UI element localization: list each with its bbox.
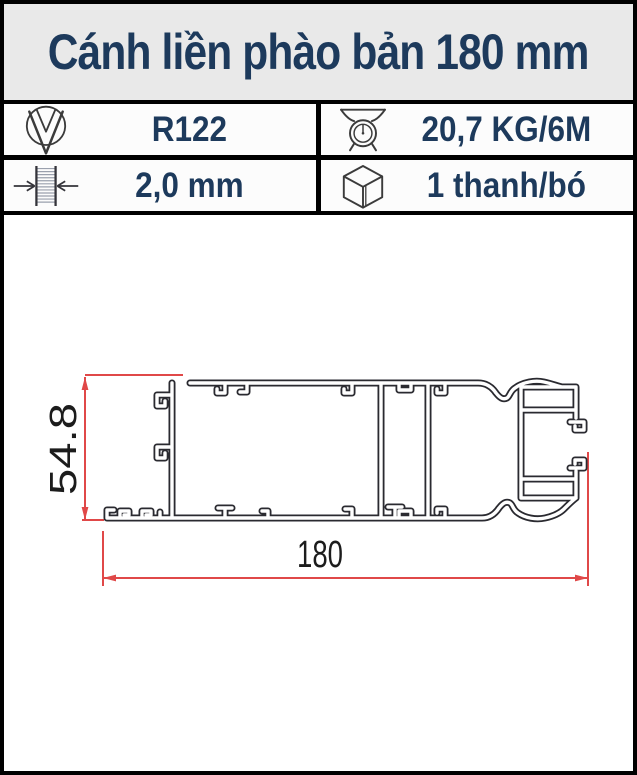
spec-table: R122 20,7 KG/6M [4,104,633,215]
arrow-down-icon [82,507,89,520]
spec-cell-thickness: 2,0 mm [4,160,316,211]
spec-cell-weight: 20,7 KG/6M [321,104,633,155]
width-dimension-label: 180 [297,534,343,576]
brand-v-logo-icon [4,104,88,155]
spec-value-weight: 20,7 KG/6M [416,110,621,150]
cube-icon [321,162,405,210]
page-title: Cánh liền phào bản 180 mm [48,23,589,81]
arrow-up-icon [82,377,89,390]
spec-value-thickness: 2,0 mm [99,166,304,206]
scale-icon [321,107,405,153]
arrow-left-icon [103,575,116,582]
spec-value-code: R122 [99,110,304,150]
title-bar: Cánh liền phào bản 180 mm [4,4,633,104]
spec-cell-packing: 1 thanh/bó [321,160,633,211]
drawing-area: 54.8 180 [4,215,633,771]
thickness-icon [4,163,88,209]
spec-value-packing: 1 thanh/bó [416,166,621,206]
spec-cell-code: R122 [4,104,316,155]
spec-sheet: Cánh liền phào bản 180 mm R122 [0,0,637,775]
profile-outline [107,381,584,519]
profile-cross-section-drawing: 54.8 180 [4,215,633,771]
height-dimension-label: 54.8 [43,403,85,495]
arrow-right-icon [575,575,588,582]
